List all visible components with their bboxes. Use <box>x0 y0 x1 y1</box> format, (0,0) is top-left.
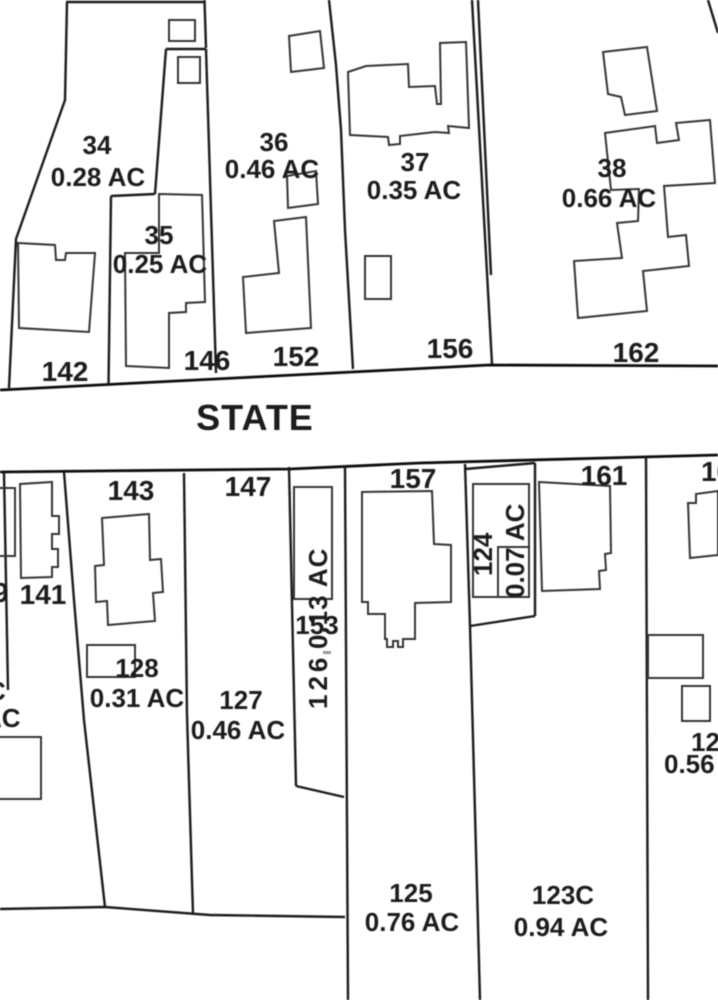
svg-text:161: 161 <box>581 460 628 491</box>
svg-text:16: 16 <box>701 456 718 487</box>
svg-text:STATE: STATE <box>196 397 314 438</box>
svg-text:0.46 AC: 0.46 AC <box>225 154 320 184</box>
svg-text:142: 142 <box>42 356 89 387</box>
svg-text:0.28 AC: 0.28 AC <box>51 162 146 192</box>
svg-text:128: 128 <box>115 653 158 683</box>
svg-text:126: 126 <box>303 654 333 709</box>
svg-text:123C: 123C <box>532 880 594 910</box>
svg-text:34: 34 <box>83 130 112 160</box>
svg-text:0.13 AC: 0.13 AC <box>303 548 333 649</box>
svg-text:152: 152 <box>273 341 320 372</box>
svg-text:38: 38 <box>598 153 627 183</box>
svg-text:125: 125 <box>389 878 432 908</box>
svg-text:0.56 AC: 0.56 AC <box>664 749 718 779</box>
svg-text:9: 9 <box>0 577 9 608</box>
svg-text:143: 143 <box>108 475 155 506</box>
svg-text:146: 146 <box>184 345 231 376</box>
svg-text:0.35 AC: 0.35 AC <box>367 175 462 205</box>
svg-text:127: 127 <box>219 685 262 715</box>
svg-text:36: 36 <box>260 127 289 157</box>
svg-text:0.07 AC: 0.07 AC <box>500 503 530 598</box>
svg-text:0.25 AC: 0.25 AC <box>113 249 208 279</box>
svg-text:0.31 AC: 0.31 AC <box>90 683 185 713</box>
svg-text:156: 156 <box>427 333 474 364</box>
svg-text:0.66 AC: 0.66 AC <box>562 183 657 213</box>
svg-text:37: 37 <box>401 147 430 177</box>
svg-text:162: 162 <box>613 337 660 368</box>
svg-text:147: 147 <box>225 471 272 502</box>
svg-text:35: 35 <box>145 220 174 250</box>
svg-text:AC: AC <box>0 703 21 733</box>
svg-text:0.46 AC: 0.46 AC <box>191 715 286 745</box>
svg-text:141: 141 <box>20 579 67 610</box>
svg-text:0.76 AC: 0.76 AC <box>365 907 460 937</box>
svg-text:157: 157 <box>390 463 437 494</box>
svg-text:C: C <box>0 676 6 706</box>
svg-text:124: 124 <box>468 532 498 576</box>
svg-text:0.94 AC: 0.94 AC <box>514 912 609 942</box>
